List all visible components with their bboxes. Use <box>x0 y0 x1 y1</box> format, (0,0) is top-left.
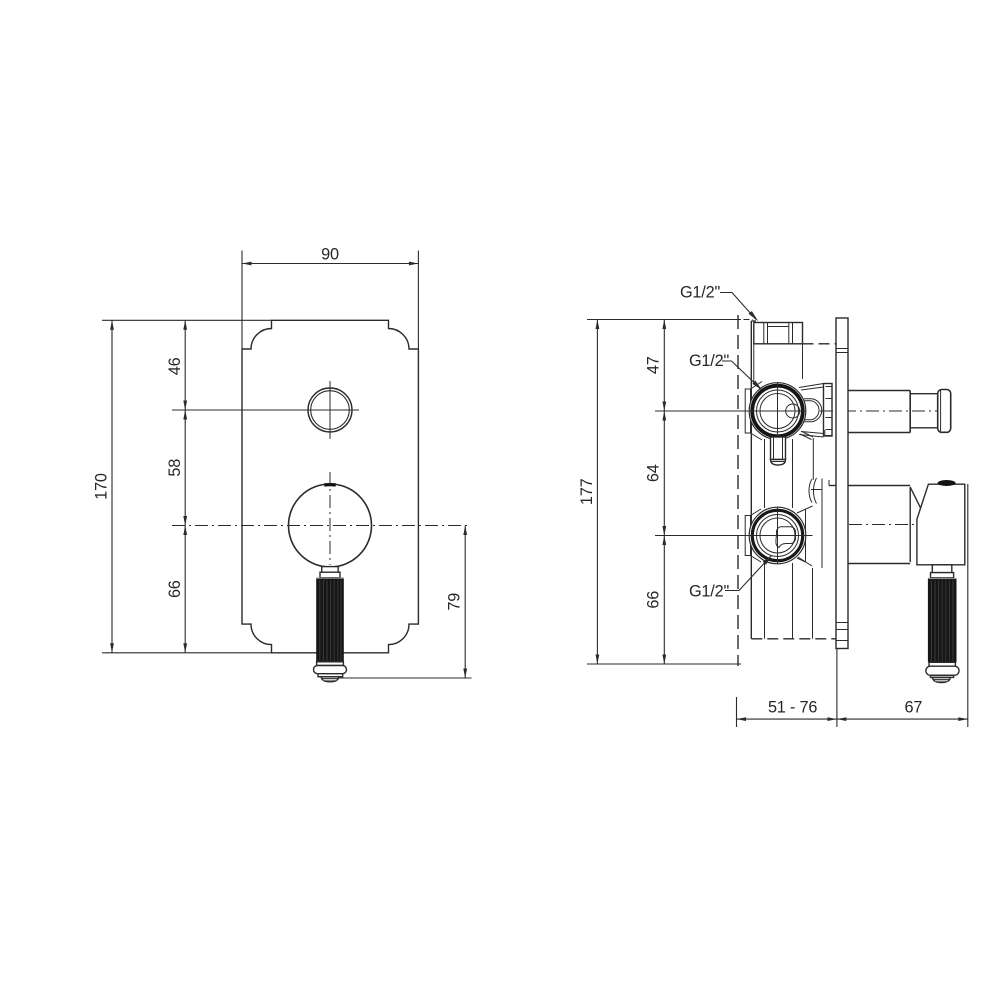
svg-text:46: 46 <box>166 357 184 375</box>
svg-text:177: 177 <box>578 478 596 505</box>
svg-text:G1/2": G1/2" <box>680 284 720 302</box>
svg-text:170: 170 <box>92 473 110 500</box>
svg-text:47: 47 <box>645 356 663 374</box>
svg-text:51 - 76: 51 - 76 <box>768 699 817 717</box>
svg-text:66: 66 <box>645 591 663 609</box>
svg-text:79: 79 <box>446 593 464 611</box>
svg-text:64: 64 <box>645 464 663 482</box>
svg-text:G1/2": G1/2" <box>689 582 729 600</box>
svg-text:67: 67 <box>905 699 923 717</box>
svg-text:66: 66 <box>166 580 184 598</box>
svg-text:90: 90 <box>321 246 339 264</box>
svg-text:58: 58 <box>166 459 184 477</box>
